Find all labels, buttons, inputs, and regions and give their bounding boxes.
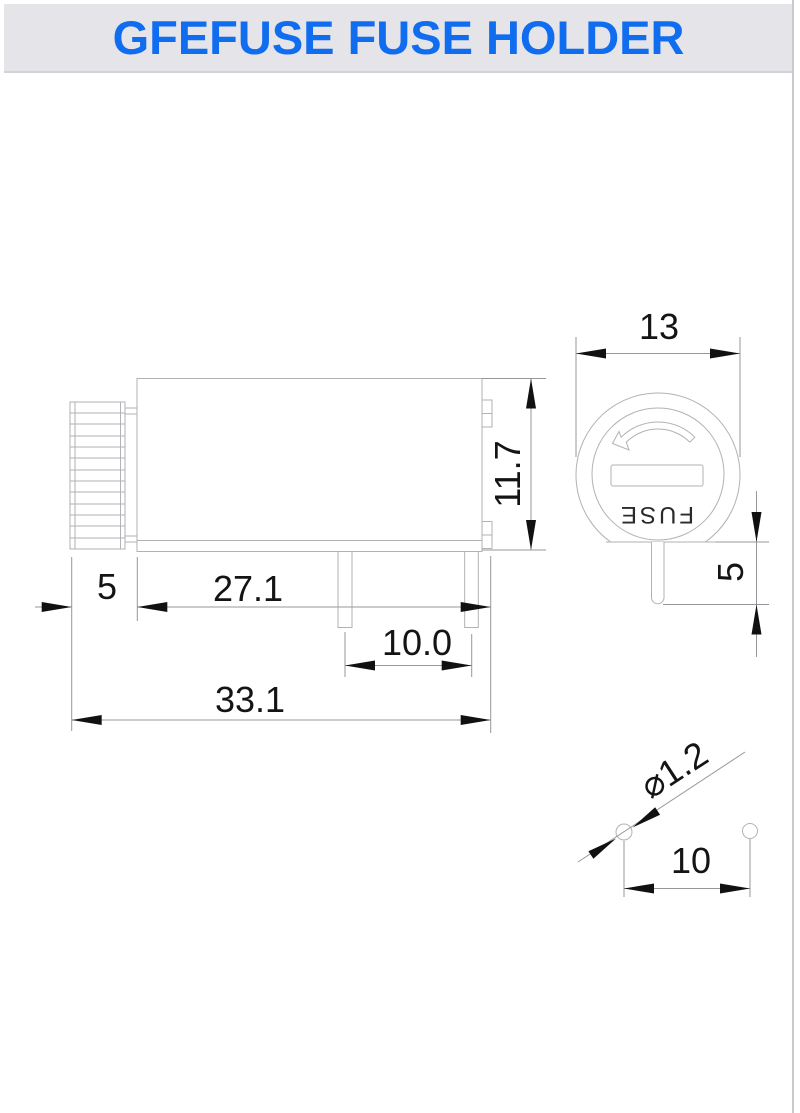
cap-tab-top — [125, 408, 137, 414]
holder-body — [137, 379, 482, 552]
fuse-holder-technical-drawing — [0, 0, 800, 1113]
dim-cap-length: 5 — [97, 569, 117, 605]
fuse-engraving-label: FUSE — [618, 502, 694, 526]
rotate-ccw-arrow-icon — [613, 422, 695, 450]
pin-hole-right — [743, 824, 758, 839]
side-pin-left — [338, 552, 352, 628]
cap-tab-bottom — [125, 536, 137, 542]
dim-overall-length: 33.1 — [215, 682, 285, 718]
dim-body-length: 27.1 — [213, 571, 283, 607]
side-pin-right — [465, 552, 479, 628]
dim-front-pin-length: 5 — [713, 562, 749, 582]
pin-layout-detail — [616, 824, 758, 841]
screw-slot — [611, 465, 703, 486]
dim-pin-pitch: 10 — [671, 843, 711, 879]
dim-side-height: 11.7 — [490, 440, 526, 507]
dim-front-diameter: 13 — [639, 309, 679, 345]
dim-pin-spacing: 10.0 — [382, 625, 452, 661]
front-pin — [652, 542, 665, 604]
